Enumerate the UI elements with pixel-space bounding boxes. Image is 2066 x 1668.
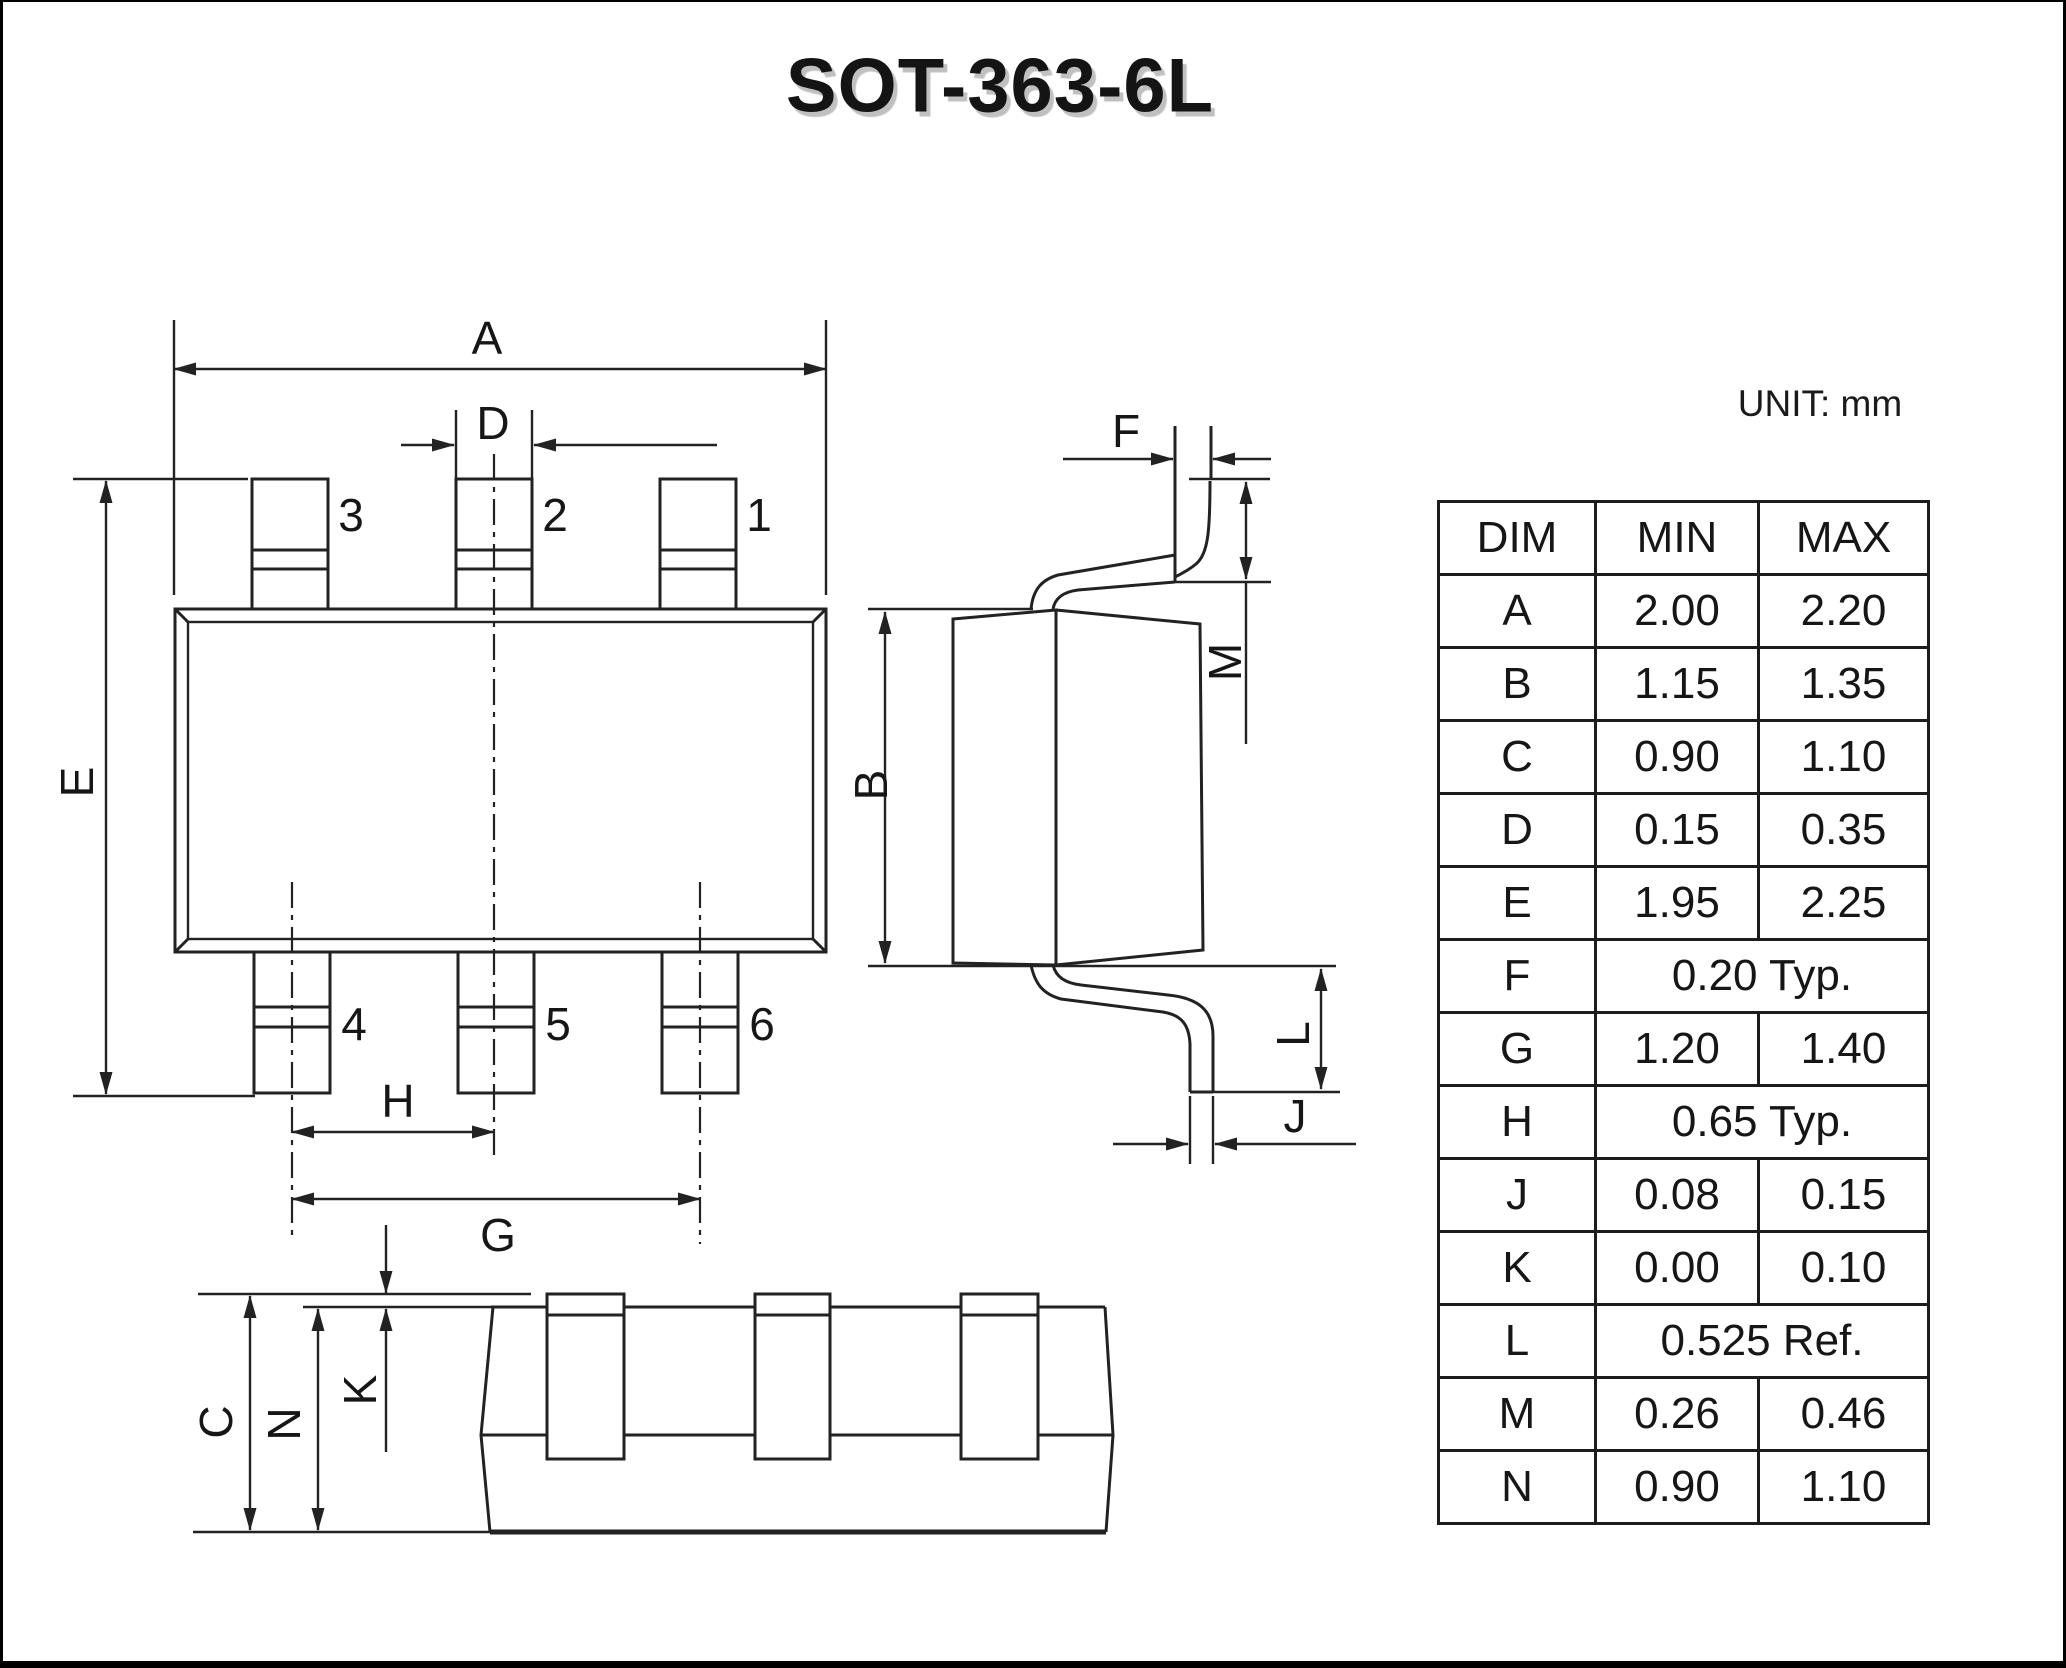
table-cell: 0.08 bbox=[1596, 1159, 1759, 1232]
table-header-row: DIM MIN MAX bbox=[1439, 502, 1929, 575]
dim-label-k: K bbox=[337, 1375, 383, 1406]
table-cell: 0.35 bbox=[1759, 794, 1929, 867]
dim-label-m: M bbox=[1202, 643, 1248, 681]
table-cell: 1.15 bbox=[1596, 648, 1759, 721]
table-row: H 0.65 Typ. bbox=[1439, 1086, 1929, 1159]
table-header-min: MIN bbox=[1596, 502, 1759, 575]
pin-number-5: 5 bbox=[545, 1001, 571, 1047]
table-cell: 0.90 bbox=[1596, 1451, 1759, 1524]
table-cell: 1.40 bbox=[1759, 1013, 1929, 1086]
table-cell: B bbox=[1439, 648, 1596, 721]
table-cell: 2.20 bbox=[1759, 575, 1929, 648]
dim-label-h: H bbox=[381, 1078, 414, 1124]
pin-number-4: 4 bbox=[341, 1001, 367, 1047]
table-cell: K bbox=[1439, 1232, 1596, 1305]
table-cell: D bbox=[1439, 794, 1596, 867]
table-cell: 1.10 bbox=[1759, 721, 1929, 794]
top-view-dimensions bbox=[73, 320, 826, 1244]
table-cell: 2.25 bbox=[1759, 867, 1929, 940]
pin-number-1: 1 bbox=[746, 492, 772, 538]
table-row: B 1.15 1.35 bbox=[1439, 648, 1929, 721]
table-row: K 0.00 0.10 bbox=[1439, 1232, 1929, 1305]
table-row: G 1.20 1.40 bbox=[1439, 1013, 1929, 1086]
table-cell: A bbox=[1439, 575, 1596, 648]
dim-label-c: C bbox=[193, 1405, 239, 1438]
table-cell-span: 0.525 Ref. bbox=[1596, 1305, 1929, 1378]
table-cell: 0.10 bbox=[1759, 1232, 1929, 1305]
table-cell: 1.35 bbox=[1759, 648, 1929, 721]
table-cell: G bbox=[1439, 1013, 1596, 1086]
table-cell: H bbox=[1439, 1086, 1596, 1159]
dim-label-f: F bbox=[1112, 408, 1140, 454]
table-row: M 0.26 0.46 bbox=[1439, 1378, 1929, 1451]
pin-number-2: 2 bbox=[542, 492, 568, 538]
table-cell: 1.95 bbox=[1596, 867, 1759, 940]
pin-number-6: 6 bbox=[749, 1001, 775, 1047]
dim-label-e: E bbox=[54, 767, 100, 798]
table-cell: 0.26 bbox=[1596, 1378, 1759, 1451]
table-cell: 0.15 bbox=[1759, 1159, 1929, 1232]
table-cell: 1.10 bbox=[1759, 1451, 1929, 1524]
table-cell: M bbox=[1439, 1378, 1596, 1451]
page-title: SOT-363-6L bbox=[786, 43, 1214, 130]
table-cell-span: 0.20 Typ. bbox=[1596, 940, 1929, 1013]
dim-label-a: A bbox=[472, 315, 503, 361]
table-row: C 0.90 1.10 bbox=[1439, 721, 1929, 794]
table-cell: 2.00 bbox=[1596, 575, 1759, 648]
table-cell: N bbox=[1439, 1451, 1596, 1524]
dim-label-d: D bbox=[476, 400, 509, 446]
front-view bbox=[481, 1294, 1113, 1532]
table-row: E 1.95 2.25 bbox=[1439, 867, 1929, 940]
dim-label-b: B bbox=[848, 770, 894, 801]
table-cell: L bbox=[1439, 1305, 1596, 1378]
drawing-sheet: SOT-363-6L UNIT: mm A D E H G F M B L J … bbox=[0, 0, 2066, 1668]
top-view bbox=[175, 479, 826, 1093]
table-cell: 1.20 bbox=[1596, 1013, 1759, 1086]
dimension-table: DIM MIN MAX A 2.00 2.20 B 1.15 1.35 C 0.… bbox=[1437, 500, 1930, 1525]
table-cell: F bbox=[1439, 940, 1596, 1013]
table-row: J 0.08 0.15 bbox=[1439, 1159, 1929, 1232]
table-cell: 0.90 bbox=[1596, 721, 1759, 794]
dim-label-l: L bbox=[1270, 1021, 1316, 1047]
table-header-max: MAX bbox=[1759, 502, 1929, 575]
table-row: N 0.90 1.10 bbox=[1439, 1451, 1929, 1524]
table-header-dim: DIM bbox=[1439, 502, 1596, 575]
side-view bbox=[953, 426, 1213, 1092]
table-row: D 0.15 0.35 bbox=[1439, 794, 1929, 867]
table-row: A 2.00 2.20 bbox=[1439, 575, 1929, 648]
dim-label-n: N bbox=[261, 1407, 307, 1440]
table-cell: C bbox=[1439, 721, 1596, 794]
table-cell: J bbox=[1439, 1159, 1596, 1232]
dim-label-g: G bbox=[480, 1212, 516, 1258]
table-row: L 0.525 Ref. bbox=[1439, 1305, 1929, 1378]
table-cell: 0.15 bbox=[1596, 794, 1759, 867]
dim-label-j: J bbox=[1284, 1093, 1307, 1139]
pin-number-3: 3 bbox=[338, 492, 364, 538]
table-cell: E bbox=[1439, 867, 1596, 940]
table-cell: 0.00 bbox=[1596, 1232, 1759, 1305]
table-cell-span: 0.65 Typ. bbox=[1596, 1086, 1929, 1159]
table-cell: 0.46 bbox=[1759, 1378, 1929, 1451]
table-row: F 0.20 Typ. bbox=[1439, 940, 1929, 1013]
unit-note: UNIT: mm bbox=[1738, 383, 1902, 425]
